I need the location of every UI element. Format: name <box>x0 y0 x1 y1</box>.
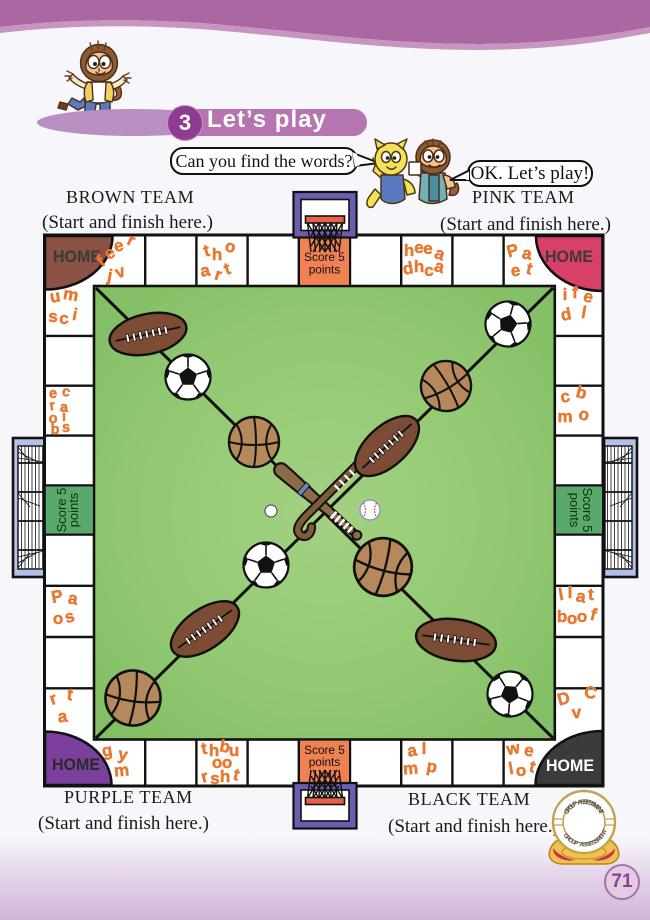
svg-text:m: m <box>402 758 419 778</box>
svg-text:l: l <box>568 583 573 602</box>
svg-text:s: s <box>62 420 70 436</box>
svg-text:HOME: HOME <box>545 247 593 266</box>
svg-text:o: o <box>567 609 577 628</box>
svg-text:s: s <box>48 307 57 326</box>
svg-text:c: c <box>424 261 433 280</box>
svg-text:f: f <box>572 283 578 302</box>
svg-text:points: points <box>66 492 81 527</box>
svg-text:HOME: HOME <box>546 756 594 775</box>
svg-text:points: points <box>309 755 341 769</box>
svg-text:i: i <box>563 285 568 304</box>
svg-text:points: points <box>567 493 582 528</box>
svg-text:h: h <box>404 241 414 260</box>
svg-text:points: points <box>309 263 341 277</box>
svg-text:m: m <box>557 407 572 426</box>
svg-text:e: e <box>510 261 521 281</box>
svg-text:h: h <box>220 767 230 786</box>
svg-text:l: l <box>422 739 427 758</box>
svg-text:HOME: HOME <box>52 755 100 774</box>
svg-text:h: h <box>414 257 424 276</box>
svg-text:e: e <box>423 239 432 258</box>
svg-text:t: t <box>588 585 594 604</box>
svg-text:b: b <box>557 607 567 626</box>
svg-text:c: c <box>59 309 68 328</box>
svg-text:s: s <box>210 769 219 788</box>
svg-text:o: o <box>516 761 526 780</box>
svg-text:o: o <box>53 609 63 628</box>
svg-text:m: m <box>113 760 130 780</box>
svg-text:o: o <box>577 607 587 626</box>
svg-text:b: b <box>51 422 60 438</box>
